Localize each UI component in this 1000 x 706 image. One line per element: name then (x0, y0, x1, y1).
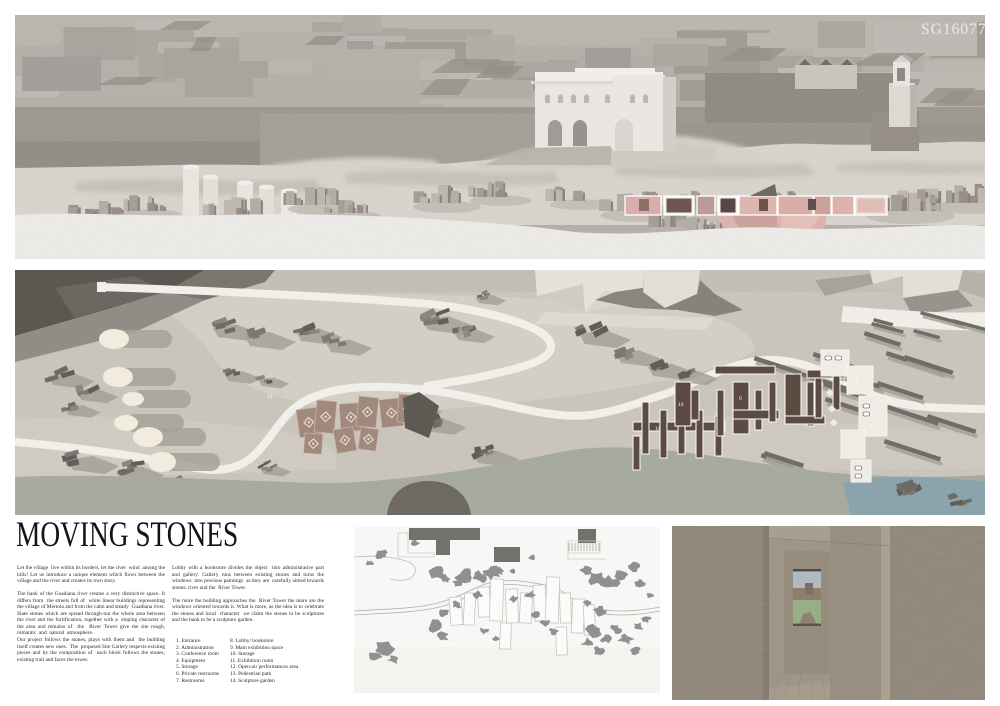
svg-text:9: 9 (739, 396, 742, 402)
svg-text:11: 11 (655, 426, 661, 432)
svg-text:8: 8 (821, 382, 824, 388)
svg-text:13: 13 (267, 394, 273, 400)
svg-text:3: 3 (849, 442, 852, 448)
svg-text:1: 1 (855, 378, 858, 384)
svg-text:4: 4 (869, 424, 872, 430)
svg-text:SG16077: SG16077 (921, 21, 985, 38)
svg-text:10: 10 (678, 402, 684, 408)
